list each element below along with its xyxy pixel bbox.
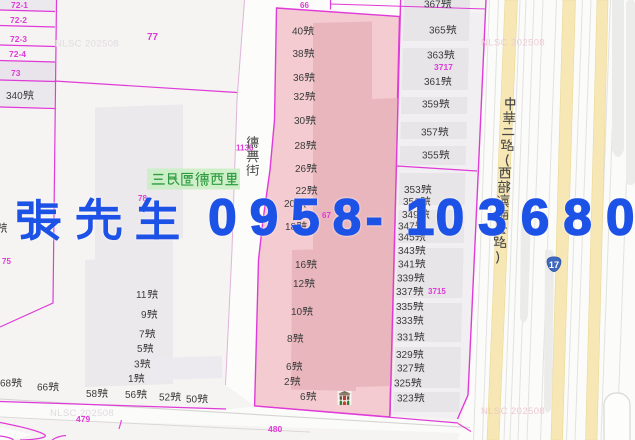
svg-text:7: 7 [139, 330, 145, 341]
svg-text:479: 479 [76, 414, 90, 424]
svg-text:343: 343 [398, 246, 415, 257]
svg-text:72-2: 72-2 [10, 15, 27, 25]
svg-text:1: 1 [406, 188, 434, 245]
svg-text:327: 327 [397, 364, 414, 375]
svg-text:50: 50 [186, 395, 198, 406]
svg-text:340: 340 [6, 91, 23, 102]
svg-text:2: 2 [284, 377, 290, 388]
svg-text:363: 363 [427, 51, 444, 62]
svg-text:361: 361 [424, 77, 441, 88]
svg-text:-: - [366, 188, 383, 245]
svg-text:339: 339 [397, 274, 414, 285]
svg-text:359: 359 [422, 100, 439, 111]
svg-text:6: 6 [300, 392, 306, 403]
svg-text:NLSC 202508: NLSC 202508 [55, 39, 119, 50]
svg-text:3715: 3715 [428, 287, 446, 296]
svg-text:75: 75 [2, 257, 11, 266]
svg-text:337: 337 [396, 287, 413, 298]
svg-text:26: 26 [295, 164, 307, 175]
svg-text:333: 333 [396, 316, 413, 327]
svg-text:36: 36 [293, 73, 305, 84]
svg-text:480: 480 [268, 424, 282, 434]
svg-text:325: 325 [394, 379, 411, 390]
svg-text:3: 3 [134, 360, 140, 371]
svg-text:16: 16 [295, 260, 307, 271]
svg-text:30: 30 [294, 116, 306, 127]
svg-text:28: 28 [295, 141, 307, 152]
svg-text:40: 40 [292, 27, 304, 38]
svg-text:66: 66 [300, 1, 309, 10]
svg-text:38: 38 [293, 49, 305, 60]
svg-text:NLSC 202508: NLSC 202508 [481, 38, 545, 49]
svg-text:66: 66 [37, 383, 49, 394]
svg-text:323: 323 [397, 394, 414, 405]
svg-text:335: 335 [396, 302, 413, 313]
svg-text:56: 56 [125, 390, 137, 401]
svg-text:3717: 3717 [434, 62, 453, 72]
svg-text:331: 331 [397, 333, 414, 344]
svg-text:9: 9 [141, 310, 147, 321]
svg-text:8: 8 [287, 334, 293, 345]
svg-text:6: 6 [286, 362, 292, 373]
svg-text:52: 52 [159, 393, 171, 404]
svg-text:73: 73 [11, 68, 21, 78]
svg-text:12: 12 [293, 279, 305, 290]
svg-text:1: 1 [128, 374, 134, 385]
svg-text:68: 68 [0, 379, 12, 390]
svg-text:365: 365 [429, 26, 446, 37]
svg-text:11: 11 [136, 290, 147, 301]
svg-text:NLSC 202508: NLSC 202508 [481, 406, 545, 417]
svg-text:0958: 0958 [208, 188, 374, 245]
svg-text:355: 355 [422, 151, 439, 162]
svg-text:72-3: 72-3 [10, 34, 27, 44]
svg-text:58: 58 [86, 389, 98, 400]
svg-text:77: 77 [147, 32, 159, 43]
svg-text:357: 357 [421, 128, 438, 139]
svg-text:72-4: 72-4 [9, 49, 26, 59]
svg-text:10: 10 [291, 307, 303, 318]
svg-text:367: 367 [424, 0, 441, 11]
svg-text:5: 5 [137, 344, 143, 355]
svg-text:72-1: 72-1 [11, 0, 28, 10]
svg-text:32: 32 [294, 92, 306, 103]
svg-text:03680: 03680 [436, 188, 635, 245]
svg-text:329: 329 [396, 350, 413, 361]
svg-text:341: 341 [398, 260, 415, 271]
